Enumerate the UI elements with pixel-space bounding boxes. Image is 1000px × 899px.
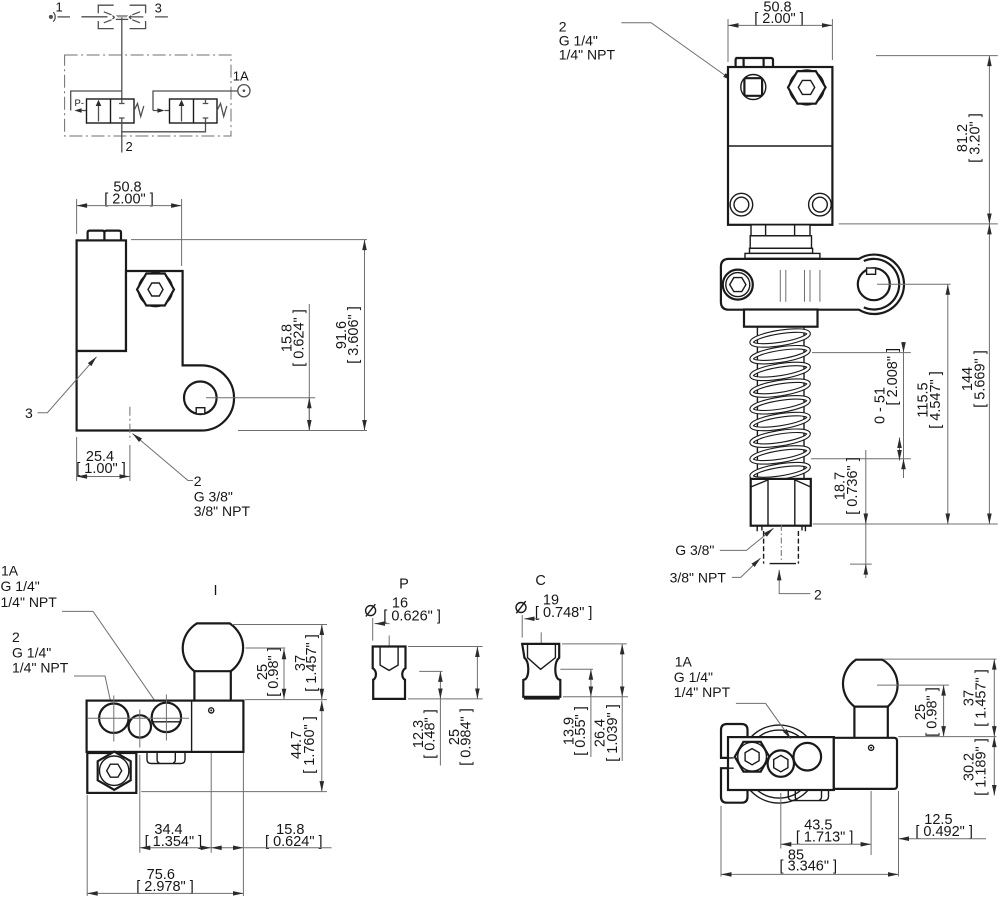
svg-text:1: 1	[56, 0, 63, 15]
svg-text:[ 1.039" ]: [ 1.039" ]	[605, 704, 621, 762]
svg-text:I: I	[214, 583, 218, 599]
svg-text:2: 2	[12, 629, 20, 645]
svg-text:[ 1.457" ]: [ 1.457" ]	[304, 634, 320, 692]
svg-text:1A: 1A	[675, 653, 693, 669]
svg-text:3/8" NPT: 3/8" NPT	[194, 503, 251, 519]
svg-text:[ 1.00" ]: [ 1.00" ]	[76, 461, 125, 477]
svg-text:[ 4.547" ]: [ 4.547" ]	[928, 371, 944, 429]
svg-text:[ 1.760" ]: [ 1.760" ]	[302, 716, 318, 774]
svg-text:[ 0.55" ]: [ 0.55" ]	[573, 706, 589, 755]
svg-text:[ 2.008" ]: [ 2.008" ]	[885, 348, 901, 406]
svg-text:P: P	[399, 577, 409, 593]
svg-text:[ 0.492" ]: [ 0.492" ]	[915, 824, 973, 840]
svg-text:[ 0.748" ]: [ 0.748" ]	[535, 605, 593, 621]
svg-text:[ 0.736" ]: [ 0.736" ]	[845, 457, 861, 515]
svg-text:G 3/8": G 3/8"	[675, 542, 714, 558]
svg-text:[ 0.98" ]: [ 0.98" ]	[266, 647, 282, 696]
svg-text:[ 0.984" ]: [ 0.984" ]	[459, 708, 475, 766]
svg-text:G 1/4": G 1/4"	[12, 644, 51, 660]
svg-text:[ 1.189" ]: [ 1.189" ]	[974, 738, 990, 796]
svg-text:[ 0.626" ]: [ 0.626" ]	[383, 609, 441, 625]
svg-text:1A: 1A	[1, 562, 19, 578]
svg-text:1/4" NPT: 1/4" NPT	[1, 594, 58, 610]
svg-text:1/4" NPT: 1/4" NPT	[559, 47, 616, 63]
svg-text:C: C	[535, 573, 545, 589]
svg-text:2: 2	[194, 473, 202, 489]
svg-text:P-: P-	[75, 98, 85, 109]
svg-text:[ 3.346" ]: [ 3.346" ]	[780, 859, 838, 875]
svg-text:[ 1.713" ]: [ 1.713" ]	[796, 829, 854, 845]
svg-text:3/8" NPT: 3/8" NPT	[670, 569, 727, 585]
svg-text:G 1/4": G 1/4"	[1, 578, 40, 594]
svg-text:1/4" NPT: 1/4" NPT	[674, 684, 731, 700]
svg-text:[ 1.457" ]: [ 1.457" ]	[974, 669, 990, 727]
svg-text:1A: 1A	[233, 69, 249, 84]
svg-text:[ 2.00" ]: [ 2.00" ]	[754, 11, 803, 27]
svg-text:3: 3	[155, 1, 162, 16]
svg-text:[ 0.48" ]: [ 0.48" ]	[423, 709, 439, 758]
svg-text:3: 3	[25, 405, 33, 421]
svg-text:[ 3.20" ]: [ 3.20" ]	[968, 113, 984, 162]
svg-text:[ 5.669" ]: [ 5.669" ]	[973, 350, 989, 408]
svg-text:1/4" NPT: 1/4" NPT	[12, 659, 69, 675]
svg-text:G 1/4": G 1/4"	[674, 669, 713, 685]
svg-text:[ 0.98" ]: [ 0.98" ]	[925, 687, 941, 736]
svg-text:[ 0.624" ]: [ 0.624" ]	[292, 309, 308, 367]
svg-text:[ 3.606" ]: [ 3.606" ]	[346, 306, 362, 364]
svg-text:[ 2.978" ]: [ 2.978" ]	[136, 879, 194, 895]
svg-text:2: 2	[814, 587, 822, 603]
svg-text:2: 2	[126, 139, 133, 154]
